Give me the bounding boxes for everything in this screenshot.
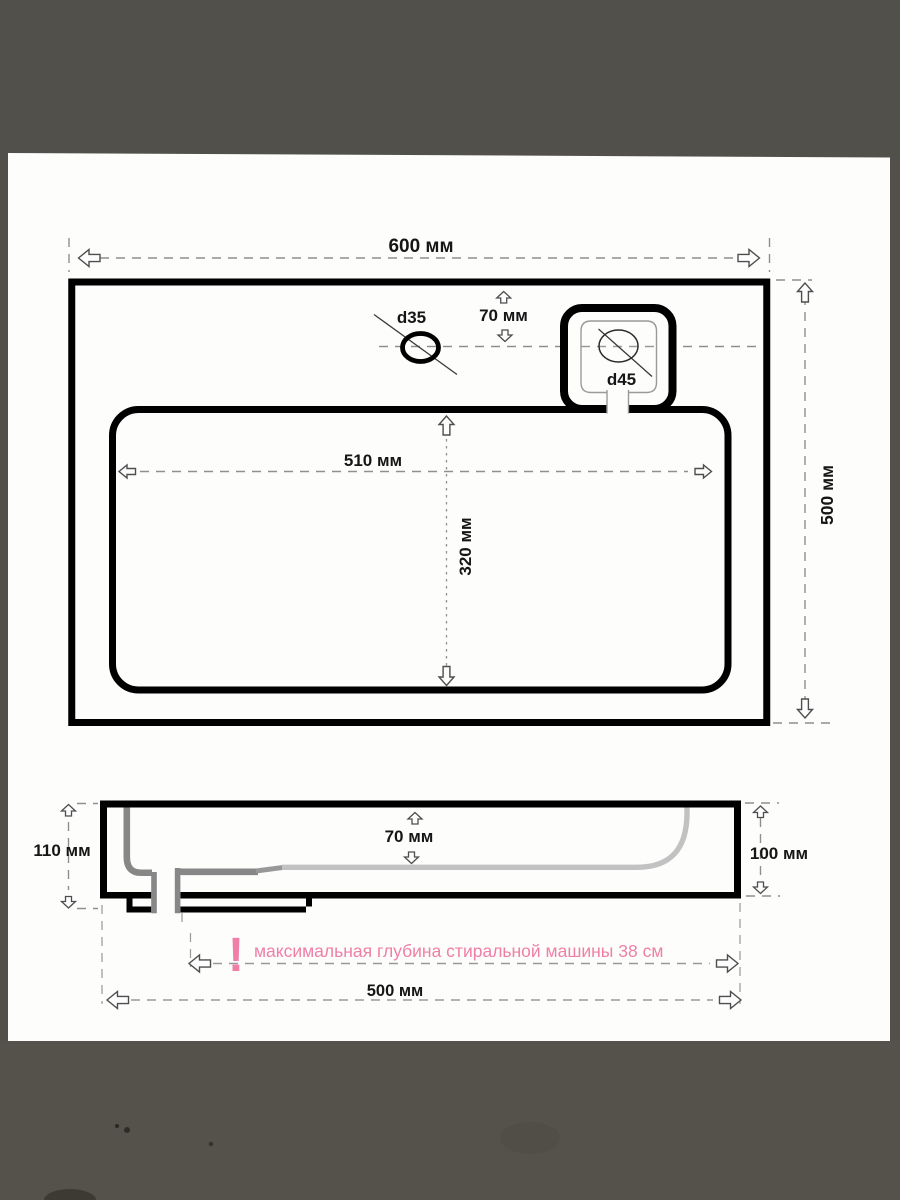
svg-text:600 мм: 600 мм — [388, 236, 453, 257]
svg-text:500 мм: 500 мм — [367, 982, 424, 1000]
svg-text:100 мм: 100 мм — [750, 844, 808, 863]
svg-text:510 мм: 510 мм — [344, 451, 402, 470]
svg-text:70 мм: 70 мм — [479, 306, 528, 325]
svg-text:d45: d45 — [607, 370, 636, 389]
svg-text:320 мм: 320 мм — [456, 517, 475, 575]
svg-text:500 мм: 500 мм — [817, 465, 837, 525]
svg-text:d35: d35 — [397, 308, 426, 327]
svg-text:!: ! — [228, 929, 244, 982]
svg-text:максимальная глубина стирально: максимальная глубина стиральной машины 3… — [254, 941, 663, 961]
svg-text:70 мм: 70 мм — [385, 827, 434, 846]
svg-text:110 мм: 110 мм — [33, 841, 90, 860]
